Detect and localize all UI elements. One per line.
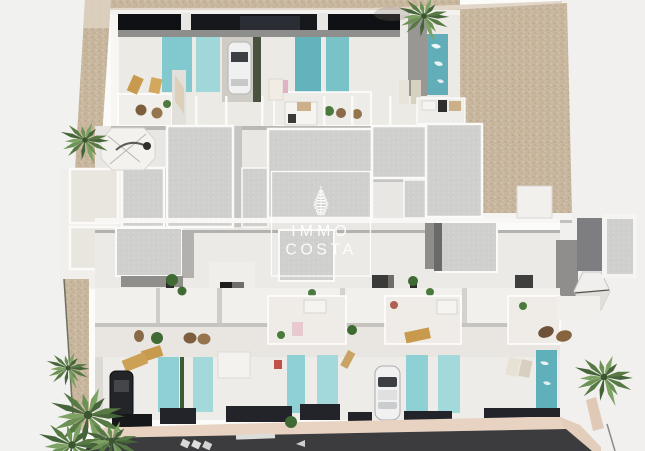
- svg-text:COSTA: COSTA: [285, 242, 356, 259]
- svg-text:IMMO: IMMO: [291, 223, 351, 240]
